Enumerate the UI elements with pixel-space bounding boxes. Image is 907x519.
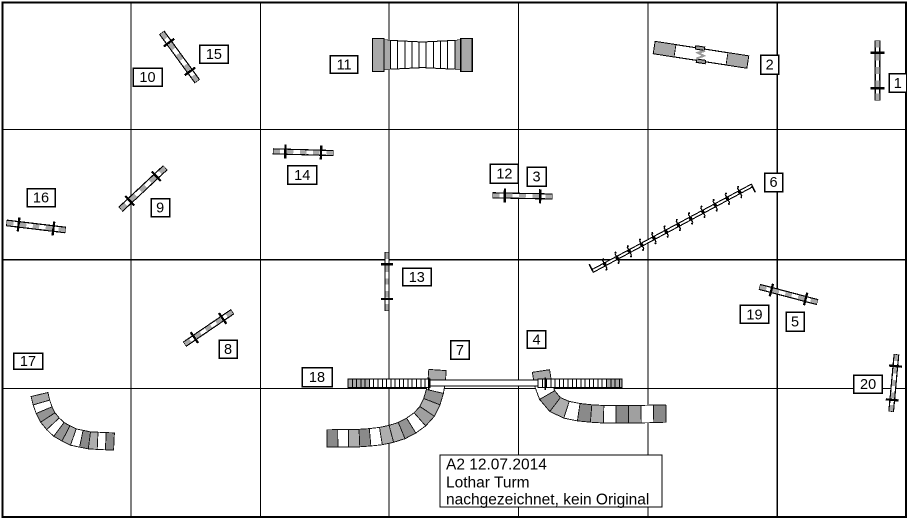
svg-text:11: 11 <box>337 58 352 74</box>
svg-text:7: 7 <box>456 343 464 359</box>
svg-text:3: 3 <box>532 170 540 186</box>
svg-text:20: 20 <box>860 377 876 393</box>
svg-text:6: 6 <box>770 175 778 191</box>
svg-text:Lothar Turm: Lothar Turm <box>446 475 530 492</box>
svg-text:A2 12.07.2014: A2 12.07.2014 <box>446 457 547 474</box>
svg-text:nachgezeichnet, kein Original: nachgezeichnet, kein Original <box>446 492 649 509</box>
svg-text:10: 10 <box>139 70 155 86</box>
svg-text:14: 14 <box>294 168 310 184</box>
svg-text:8: 8 <box>224 342 232 358</box>
svg-text:2: 2 <box>766 58 774 74</box>
svg-text:19: 19 <box>746 307 762 323</box>
svg-text:12: 12 <box>496 167 512 183</box>
svg-text:5: 5 <box>791 315 799 331</box>
svg-text:15: 15 <box>206 47 222 63</box>
svg-text:4: 4 <box>533 332 541 348</box>
svg-text:17: 17 <box>20 354 36 370</box>
svg-text:16: 16 <box>33 191 49 207</box>
svg-text:1: 1 <box>894 76 902 92</box>
svg-text:9: 9 <box>156 201 164 217</box>
svg-text:18: 18 <box>309 370 325 386</box>
svg-text:13: 13 <box>409 270 425 286</box>
